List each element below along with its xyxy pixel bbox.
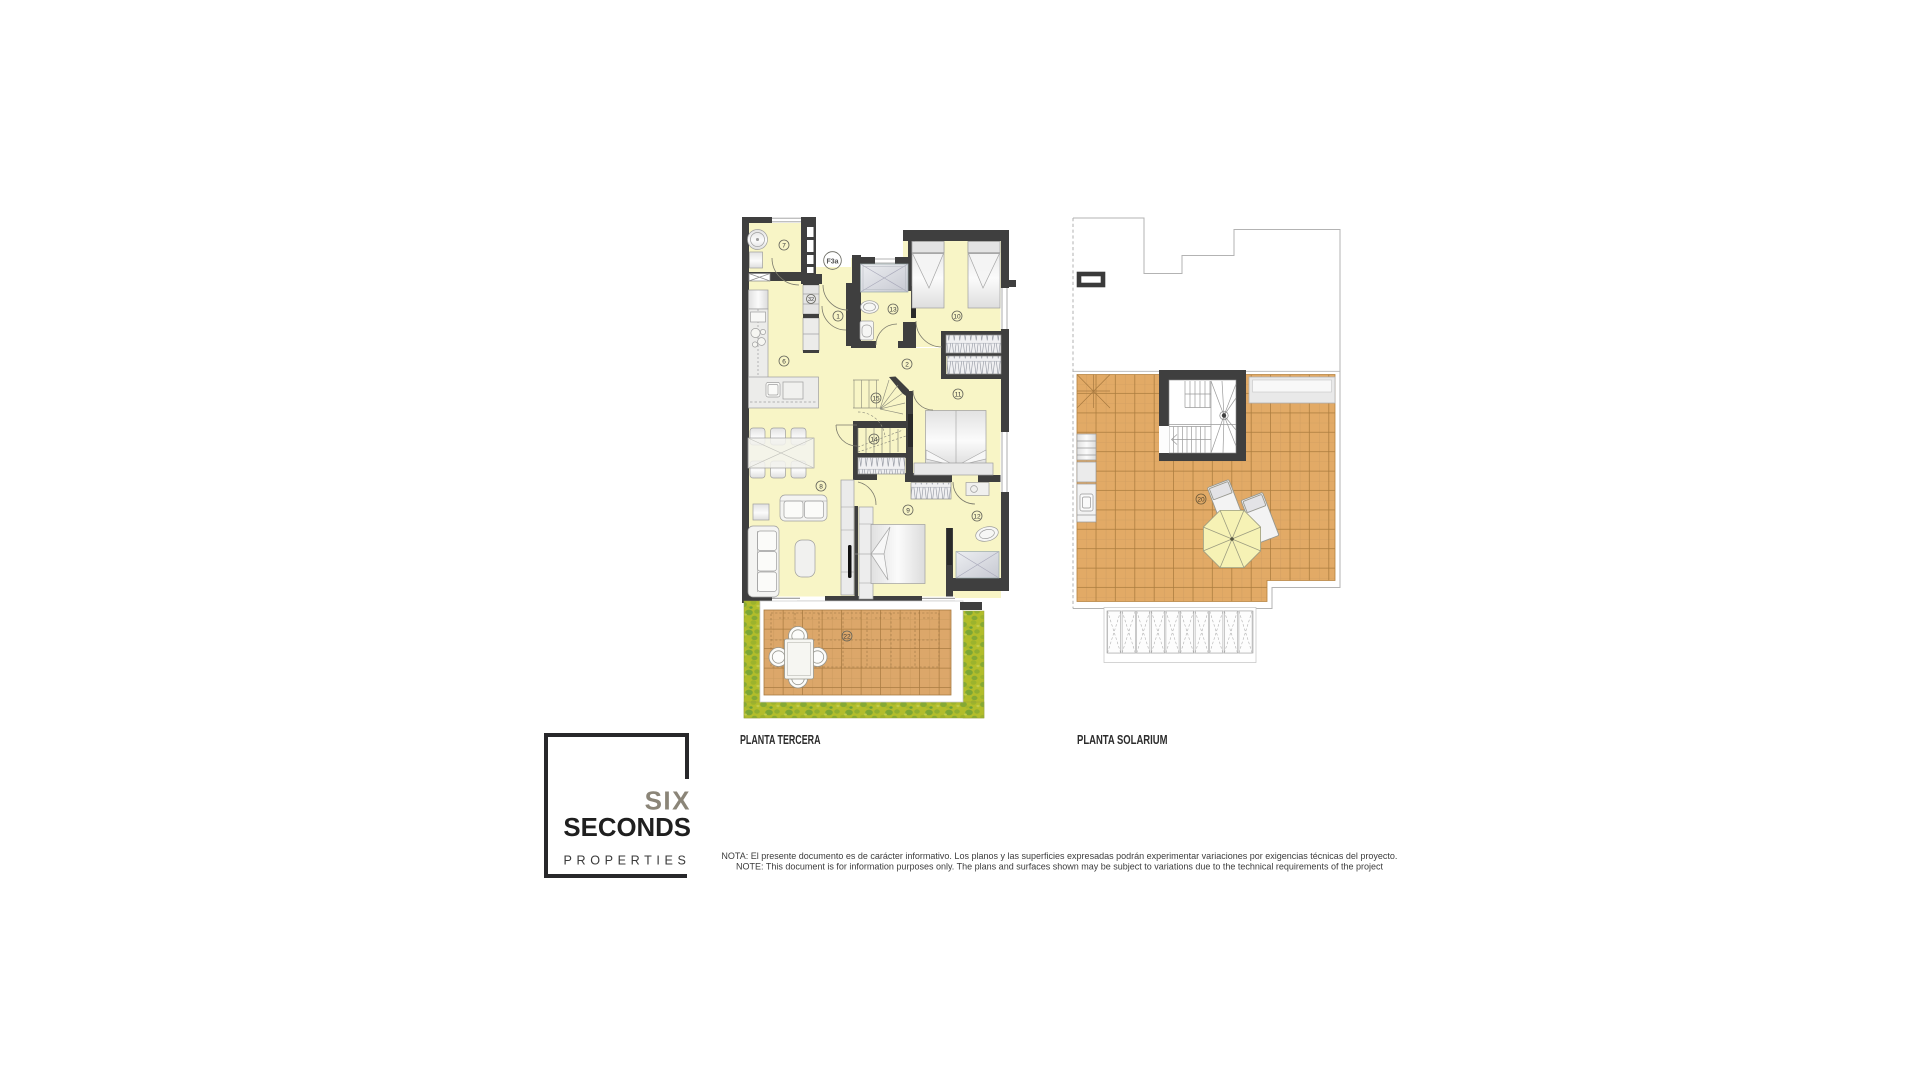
svg-text:8: 8 bbox=[819, 483, 823, 490]
svg-text:6: 6 bbox=[782, 358, 786, 365]
svg-text:9: 9 bbox=[906, 507, 910, 514]
svg-text:SIX: SIX bbox=[645, 786, 691, 816]
svg-text:NOTE: This document is for inf: NOTE: This document is for information p… bbox=[736, 860, 1383, 871]
svg-text:15: 15 bbox=[872, 395, 880, 402]
svg-text:22: 22 bbox=[843, 633, 851, 640]
svg-text:13: 13 bbox=[889, 306, 897, 313]
svg-text:32: 32 bbox=[808, 297, 814, 303]
svg-text:10: 10 bbox=[953, 313, 961, 320]
svg-text:20: 20 bbox=[1197, 496, 1205, 503]
svg-text:PLANTA SOLARIUM: PLANTA SOLARIUM bbox=[1077, 733, 1168, 747]
svg-text:SECONDS: SECONDS bbox=[563, 814, 691, 842]
svg-text:7: 7 bbox=[782, 242, 786, 249]
svg-text:PLANTA TERCERA: PLANTA TERCERA bbox=[740, 733, 821, 747]
svg-text:11: 11 bbox=[955, 391, 962, 398]
svg-text:F3a: F3a bbox=[826, 258, 838, 265]
svg-text:12: 12 bbox=[973, 513, 981, 520]
svg-text:1: 1 bbox=[836, 313, 840, 320]
svg-text:NOTA: El presente documento es: NOTA: El presente documento es de caráct… bbox=[721, 850, 1397, 861]
svg-text:2: 2 bbox=[905, 361, 909, 368]
svg-text:PROPERTIES: PROPERTIES bbox=[564, 854, 691, 868]
svg-text:14: 14 bbox=[870, 436, 878, 443]
